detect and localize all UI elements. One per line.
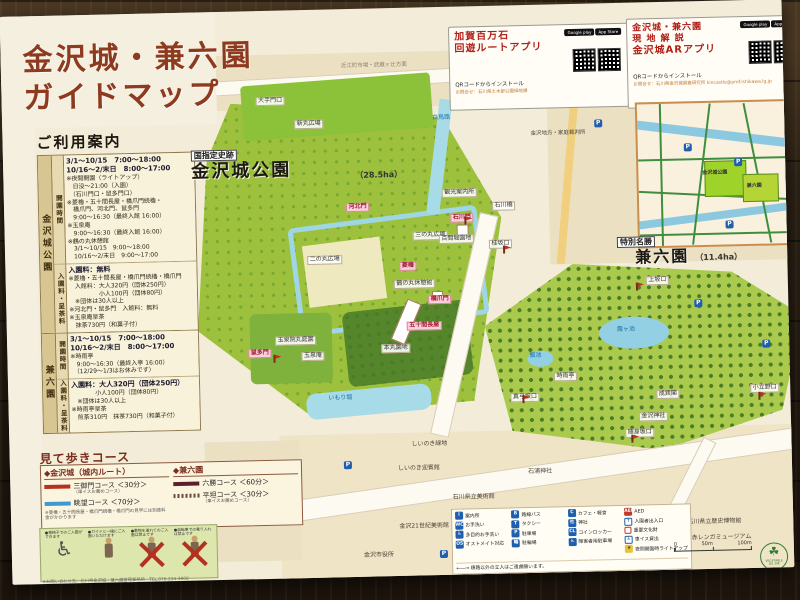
- bus-icon: B: [511, 510, 519, 518]
- leaf-icon: ☘: [761, 543, 787, 560]
- map-label: 金沢地方・家庭裁判所: [530, 130, 585, 138]
- legend-item: 重要文化財: [625, 525, 688, 533]
- map-label: 金沢神社: [639, 412, 668, 422]
- info-line: 10/16〜2/末日 9:00〜17:00: [68, 251, 194, 262]
- legend-item: B路線バス: [511, 509, 568, 518]
- accessible-parking-icon: ♿: [568, 537, 576, 545]
- map-label: 本丸園地: [381, 344, 410, 354]
- legend-item: CLコインロッカー: [568, 527, 625, 536]
- qr-code: [573, 48, 597, 72]
- castle-courses-heading: ◆金沢城（城内ルート）: [44, 465, 169, 480]
- legend-item: ♿障害者用駐車場: [568, 536, 625, 545]
- qr-code: [598, 48, 622, 72]
- prohibited-x-icon: [135, 540, 166, 567]
- map-title: 金沢城・兼六園 ガイドマップ: [22, 37, 255, 117]
- shrine-icon: 社: [568, 518, 576, 526]
- course-item: 六勝コース ＜60分＞: [173, 476, 298, 489]
- logo-text: OIL INK: [761, 562, 787, 566]
- entrance-flag-icon: [503, 246, 505, 254]
- usage-info-heading: ご利用案内: [36, 129, 194, 154]
- city-inset-map: 金沢城公園 兼六園 P P P: [635, 99, 795, 249]
- map-label: 石川橋: [492, 201, 515, 210]
- legend-item: ↑入園者出入口: [624, 516, 687, 525]
- entrance-flag-icon: [631, 435, 633, 443]
- parking-icon: P: [734, 158, 742, 166]
- inset-kenrokuen-label: 兼六園: [747, 182, 762, 189]
- info-line: （12/29〜1/3はお休みです）: [71, 366, 197, 377]
- map-label: しいのき迎賓館: [398, 465, 440, 473]
- parking-icon: P: [762, 340, 770, 348]
- map-label: 観光案内所: [442, 188, 477, 198]
- kenrokuen-courses-heading: ◆兼六園: [173, 462, 298, 477]
- map-label: 随身坂口: [625, 428, 654, 438]
- parking-icon: P: [440, 550, 448, 558]
- map-label: 鶴の丸休憩館: [394, 279, 435, 289]
- wheelchair-rental-icon: ♿: [625, 535, 633, 543]
- info-line: 抹茶730円（和菓子付）: [70, 319, 196, 330]
- course-time: ＜70分＞: [110, 497, 140, 508]
- map-label: 橋爪門: [428, 295, 451, 304]
- map-label: 大手門口: [256, 97, 285, 107]
- guide-person-icon: [103, 538, 111, 560]
- toilet-icon: WC: [455, 521, 463, 529]
- ninomaru-plaza-shape: [302, 236, 387, 307]
- map-label: 玉泉庵: [301, 352, 324, 361]
- legend-item: 輪駐輪場: [512, 538, 569, 547]
- map-label: しいのき緑地: [411, 441, 447, 449]
- map-label: 河北門: [346, 203, 369, 212]
- kenrokuen-hours-block: 開園時間 3/1〜10/15 7:00〜18:00 10/16〜2/末日 8:0…: [56, 330, 199, 380]
- map-label: いもり堀: [328, 395, 352, 402]
- legend-item: 社神社: [568, 517, 625, 526]
- map-label: 新丸広場: [294, 120, 323, 130]
- app-box-route: 加賀百万石 回遊ルートアプリ Google playApp Store QRコー…: [448, 23, 630, 111]
- taxi-icon: T: [512, 520, 520, 528]
- guide-map-paper: 金沢城・兼六園 ガイドマップ 加賀百万石 回遊ルートアプリ Google pla…: [0, 0, 794, 585]
- map-label: 石川県立美術館: [453, 494, 495, 502]
- qr-code: [748, 40, 772, 64]
- castle-park-area: （28.5ha）: [355, 170, 402, 180]
- course-line-dotted: [174, 494, 200, 499]
- lightup-icon: ★: [625, 545, 633, 553]
- castle-hours-block: 開園時間 3/1〜10/15 7:00〜18:00 10/16〜2/末日 8:0…: [52, 153, 196, 265]
- scale-bar: 0 50m 100m: [674, 540, 752, 552]
- parking-icon: P: [594, 119, 602, 127]
- google-play-badge: Google play: [740, 20, 770, 28]
- cafe-icon: C: [568, 509, 576, 517]
- course-time: ＜60分＞: [239, 477, 269, 488]
- course-line-maroon: [173, 482, 199, 487]
- course-note: （車イスお薦めコース）: [73, 489, 169, 496]
- map-label: 石川県立歴史博物館: [687, 518, 741, 526]
- app1-title2: 回遊ルートアプリ: [454, 42, 544, 56]
- usage-info-panel: ご利用案内 金沢城公園 開園時間 3/1〜10/15 7:00〜18:00 10…: [36, 129, 201, 434]
- aed-icon: AED: [624, 508, 632, 516]
- map-title-line1: 金沢城・兼六園: [22, 37, 254, 80]
- park-rules-box: ●車椅子でのご入園ができます ♿ ●ガイドと一緒にご入園いただけます ●動物を連…: [39, 524, 218, 582]
- parking-icon: P: [694, 299, 702, 307]
- kenrokuen-fees-block: 入園料・呈茶料 入園料：大人320円（団体250円） 小人100円（団体80円）…: [57, 377, 200, 433]
- important-cultural-property-icon: [625, 527, 632, 534]
- entrance-flag-icon: [758, 392, 760, 400]
- map-label: 金沢21世紀美術館: [399, 523, 449, 531]
- legend-item: AEDAED: [624, 506, 687, 515]
- map-label: 上坂口: [646, 276, 669, 285]
- prohibited-x-icon: [178, 539, 209, 566]
- parking-icon: P: [512, 529, 520, 537]
- wheelchair-icon: ♿: [45, 539, 83, 560]
- map-label: 玉泉院丸庭園: [275, 336, 316, 346]
- legend-item: ♿多目的お手洗い: [455, 529, 512, 538]
- legend-item: Tタクシー: [512, 519, 569, 528]
- map-label: 鼠多門: [248, 349, 271, 358]
- rule-no-pets: ●動物を連れてのご入園は禁止です: [131, 528, 170, 579]
- kenrokuen-section: 兼六園 開園時間 3/1〜10/15 7:00〜18:00 10/16〜2/末日…: [42, 330, 200, 433]
- legend-item: P駐車場: [512, 528, 569, 537]
- legend-item: OSオストメイト対応: [456, 539, 513, 548]
- castle-courses: ◆金沢城（城内ルート） 三御門コース ＜30分＞ （車イスお薦めコース） 眺望コ…: [44, 465, 170, 528]
- course-footnote: ※菱櫓・五十間長屋・橋爪門続櫓・橋爪門の見学には別途料金がかかります: [45, 508, 170, 522]
- facilities-legend: i案内所 WCお手洗い ♿多目的お手洗い OSオストメイト対応 B路線バス Tタ…: [451, 503, 692, 574]
- kenrokuen-name: 兼六園: [635, 247, 689, 267]
- kenrokuen-hours-label: 開園時間: [56, 333, 69, 379]
- parking-icon: P: [725, 220, 733, 228]
- map-label: 白鳥路: [432, 115, 450, 122]
- rule-guide: ●ガイドと一緒にご入園いただけます: [88, 529, 127, 580]
- bicycle-parking-icon: 輪: [512, 539, 520, 547]
- map-label: 百間堀園地: [439, 234, 474, 244]
- map-label: 霞ヶ池: [617, 327, 635, 334]
- course-name: 六勝コース: [202, 478, 237, 489]
- map-label: 時雨亭: [554, 372, 577, 381]
- castle-park-name: 金沢城公園: [191, 160, 291, 183]
- map-title-line2: ガイドマップ: [23, 75, 255, 118]
- legend-item: Cカフェ・軽食: [568, 508, 625, 517]
- ostomate-icon: OS: [456, 540, 464, 548]
- rule-wheelchair: ●車椅子でのご入園ができます ♿: [45, 530, 84, 581]
- entrance-flag-icon: [273, 355, 275, 363]
- parking-icon: P: [684, 143, 692, 151]
- google-play-badge: Google play: [565, 28, 595, 36]
- course-line-red: [44, 484, 70, 489]
- entrance-flag-icon: [636, 283, 638, 291]
- legend-item: WCお手洗い: [455, 520, 512, 529]
- course-item: 眺望コース ＜70分＞: [45, 496, 170, 509]
- map-label: 成巽閣: [656, 390, 679, 399]
- entrance-gate-icon: ↑: [624, 517, 632, 525]
- kenrokuen-courses: ◆兼六園 六勝コース ＜60分＞ 平坦コース ＜30分＞ （車イスお薦めコース）: [169, 462, 299, 525]
- rule-no-bicycles: ●自転車での乗り入れは禁止です: [174, 527, 213, 578]
- app2-title3: 金沢城ARアプリ: [632, 43, 724, 57]
- entrance-flag-icon: [464, 216, 466, 224]
- course-line-blue: [45, 501, 71, 506]
- map-label: 五十間長屋: [407, 321, 442, 331]
- app-store-badge: App Store: [595, 28, 621, 36]
- entrance-flag-icon: [522, 395, 524, 403]
- app-box-ar: 金沢城・兼六園 現 地 解 説 金沢城ARアプリ Google playApp …: [626, 15, 794, 109]
- map-label: 石浦神社: [528, 469, 552, 476]
- river: [635, 199, 795, 231]
- map-label: 菱櫓: [399, 262, 416, 271]
- legend-item: i案内所: [455, 510, 512, 519]
- inset-castle-label: 金沢城公園: [702, 168, 727, 176]
- coin-locker-icon: CL: [568, 528, 576, 536]
- accessible-toilet-icon: ♿: [455, 531, 463, 539]
- usage-info-table: 金沢城公園 開園時間 3/1〜10/15 7:00〜18:00 10/16〜2/…: [37, 152, 201, 434]
- kenrokuen-area: （11.4ha）: [695, 252, 742, 262]
- walking-courses-box: ◆金沢城（城内ルート） 三御門コース ＜30分＞ （車イスお薦めコース） 眺望コ…: [40, 459, 303, 531]
- map-label: 金沢市役所: [364, 552, 394, 560]
- course-name: 眺望コース: [74, 498, 109, 509]
- map-label: 二の丸広場: [307, 255, 342, 265]
- parking-icon: P: [344, 461, 352, 469]
- castle-section: 金沢城公園 開園時間 3/1〜10/15 7:00〜18:00 10/16〜2/…: [38, 153, 198, 334]
- castle-fees-block: 入園料・呈茶料 入園料：無料 ※菱櫓・五十間長屋・橋爪門続櫓・橋爪門 入館料：大…: [54, 261, 197, 332]
- map-label: 瓢池: [529, 353, 541, 360]
- course-note: （車イスお薦めコース）: [203, 498, 299, 505]
- info-icon: i: [455, 512, 463, 520]
